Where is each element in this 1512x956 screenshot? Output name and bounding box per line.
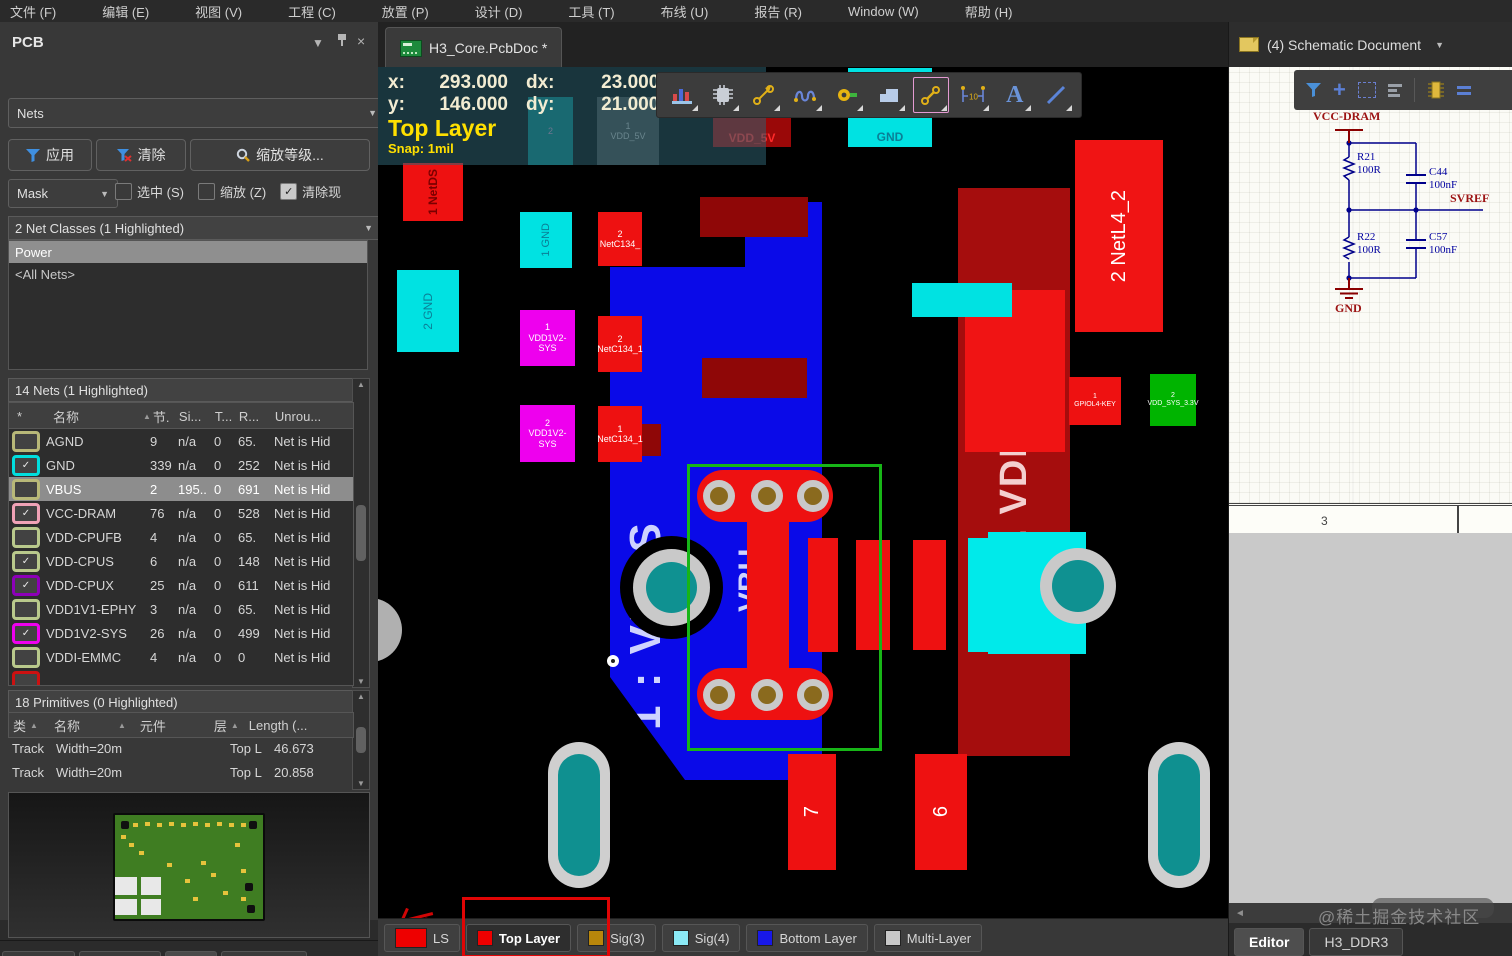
document-tab[interactable]: H3_Core.PcbDoc * xyxy=(385,27,562,68)
net-visibility-checkbox[interactable]: ✓ xyxy=(12,551,40,572)
primitives-header: 18 Primitives (0 Highlighted) xyxy=(8,690,366,714)
net-unrouted: Net is Hid xyxy=(274,626,353,641)
net-label-svref[interactable]: SVREF xyxy=(1450,191,1489,206)
pad-netl4[interactable]: 2 NetL4_2 xyxy=(1075,140,1163,332)
net-signal: 195.. xyxy=(178,482,214,497)
schematic-panel-title: (4) Schematic Document xyxy=(1267,37,1421,53)
net-routed: 65. xyxy=(238,602,274,617)
net-row[interactable] xyxy=(9,669,353,686)
net-t: 0 xyxy=(214,578,238,593)
menu-item[interactable]: 视图 (V) xyxy=(195,2,242,21)
menu-bar: 文件 (F)编辑 (E)视图 (V)工程 (C)放置 (P)设计 (D)工具 (… xyxy=(0,0,1512,23)
board-preview[interactable] xyxy=(8,792,370,938)
drill-hole-ring[interactable] xyxy=(378,598,402,662)
net-classes-list: Power<All Nets> xyxy=(8,240,368,370)
net-unrouted: Net is Hid xyxy=(274,650,353,665)
nets-list: AGND9n/a065.Net is Hid✓GND339n/a0252Net … xyxy=(8,428,354,686)
primitives-header-label: 18 Primitives (0 Highlighted) xyxy=(15,695,178,710)
net-row[interactable]: VDD-CPUFB4n/a065.Net is Hid xyxy=(9,525,353,549)
net-signal: n/a xyxy=(178,506,214,521)
net-routed: 499 xyxy=(238,626,274,641)
net-unrouted: Net is Hid xyxy=(274,506,353,521)
menu-item[interactable]: 布线 (U) xyxy=(661,2,709,21)
net-unrouted: Net is Hid xyxy=(274,602,353,617)
menu-item[interactable]: Window (W) xyxy=(848,4,919,19)
panel-dropdown-icon[interactable]: ▼ xyxy=(312,36,324,50)
net-row[interactable]: VDDI-EMMC4n/a00Net is Hid xyxy=(9,645,353,669)
net-t: 0 xyxy=(214,530,238,545)
tab-pcb[interactable]: PCB xyxy=(165,951,218,956)
pad-label: VDD1V2-SYS xyxy=(520,428,575,449)
menu-item[interactable]: 编辑 (E) xyxy=(102,2,149,21)
net-visibility-checkbox[interactable] xyxy=(12,479,40,500)
net-unrouted: Net is Hid xyxy=(274,530,353,545)
board-thumbnail xyxy=(113,813,265,921)
resistor-value[interactable]: 100R xyxy=(1357,164,1381,176)
net-node-count: 9 xyxy=(150,434,178,449)
col-pname: 名称 xyxy=(38,716,114,735)
board-connector xyxy=(141,877,161,895)
primitive-layer: Top L xyxy=(230,741,274,756)
net-node-count: 339 xyxy=(150,458,178,473)
close-icon[interactable]: × xyxy=(357,33,365,49)
dropdown-corner xyxy=(1025,105,1031,111)
net-routed: 691 xyxy=(238,482,274,497)
net-unrouted: Net is Hid xyxy=(274,458,353,473)
net-name: AGND xyxy=(40,434,150,449)
scroll-down-icon[interactable]: ▼ xyxy=(357,677,365,686)
resistor-value[interactable]: 100R xyxy=(1357,244,1381,256)
net-node-count: 2 xyxy=(150,482,178,497)
schematic-panel: (4) Schematic Document ▼ xyxy=(1228,22,1512,956)
scroll-thumb[interactable] xyxy=(356,727,366,753)
vdd5-region[interactable]: 2. VDD_5 xyxy=(958,188,1070,756)
document-tab-label: H3_Core.PcbDoc * xyxy=(429,40,547,56)
line-icon[interactable] xyxy=(1039,78,1073,112)
net-node-count: 6 xyxy=(150,554,178,569)
net-signal: n/a xyxy=(178,626,214,641)
primitives-column-header[interactable]: 类 ▲ 名称 ▲ 元件 层 ▲ Length (... xyxy=(8,712,354,738)
col-nodes: 节. xyxy=(151,407,179,426)
track-icon[interactable] xyxy=(913,77,949,113)
net-t: 0 xyxy=(214,482,238,497)
annotation-scribble xyxy=(425,908,441,918)
primitive-layer: Top L xyxy=(230,765,274,780)
schematic-preview[interactable]: VCC-DRAM R21 100R C44 100nF SVREF R22 10… xyxy=(1229,67,1512,533)
net-visibility-checkbox[interactable] xyxy=(12,671,40,687)
mask-select[interactable]: Mask ▼ xyxy=(8,179,118,208)
schematic-wiring xyxy=(1229,67,1512,533)
layer-tab-bottom-layer[interactable]: Bottom Layer xyxy=(746,924,867,952)
hud-y-label: y: xyxy=(388,94,416,116)
col-si: Si... xyxy=(179,409,215,424)
zoom-level-button[interactable]: 缩放等级... xyxy=(190,139,370,171)
col-type: 类 xyxy=(9,716,26,735)
pad-cyan-bar[interactable] xyxy=(968,538,1002,652)
pad-label: 1 GND xyxy=(540,223,552,257)
tab-editor[interactable]: Editor xyxy=(1234,928,1304,956)
net-row[interactable]: VBUS2195..0691Net is Hid xyxy=(9,477,353,501)
dropdown-corner xyxy=(774,105,780,111)
net-visibility-checkbox[interactable]: ✓ xyxy=(12,575,40,596)
net-row[interactable]: ✓VCC-DRAM76n/a0528Net is Hid xyxy=(9,501,353,525)
mask-value: Mask xyxy=(17,186,48,201)
net-node-count: 26 xyxy=(150,626,178,641)
net-row[interactable]: ✓VDD1V2-SYS26n/a0499Net is Hid xyxy=(9,621,353,645)
primitive-row[interactable]: TrackWidth=20mTop L20.858 xyxy=(8,760,352,784)
dimension-icon[interactable]: 10 xyxy=(956,78,990,112)
zone-divider xyxy=(1457,506,1459,536)
pcb-canvas[interactable]: 2 1 VDD_5V VDD_5V GND 1 : VBUS VBU 1 Net… xyxy=(378,67,1228,918)
pad-label: GPIOL4-KEY xyxy=(1074,401,1116,409)
layer-tab-label: Multi-Layer xyxy=(907,931,971,946)
capacitor-ref[interactable]: C57 xyxy=(1429,231,1447,243)
option-checkboxes: 选中 (S)缩放 (Z)✓清除现 xyxy=(115,182,378,201)
option-checkbox[interactable]: 缩放 (Z) xyxy=(198,182,266,201)
scroll-down-icon[interactable]: ▼ xyxy=(357,779,365,788)
net-unrouted: Net is Hid xyxy=(274,578,353,593)
net-classes-header-label: 2 Net Classes (1 Highlighted) xyxy=(15,221,184,236)
clear-button[interactable]: 清除 xyxy=(96,139,186,171)
col-r: R... xyxy=(239,409,275,424)
resistor-ref[interactable]: R22 xyxy=(1357,231,1375,243)
component-icon[interactable] xyxy=(706,78,740,112)
chevron-down-icon: ▼ xyxy=(364,223,373,233)
checkbox-icon[interactable] xyxy=(115,183,132,200)
dropdown-corner xyxy=(692,105,698,111)
filter-icon[interactable] xyxy=(1306,83,1321,97)
dropdown-corner xyxy=(733,105,739,111)
net-routed: 148 xyxy=(238,554,274,569)
option-checkbox[interactable]: ✓清除现 xyxy=(280,182,341,201)
interactive-route-icon[interactable] xyxy=(747,78,781,112)
menu-item[interactable]: 设计 (D) xyxy=(475,2,523,21)
divider xyxy=(1414,78,1415,102)
pad-label: 1 NetDS xyxy=(426,169,440,215)
scroll-up-icon[interactable]: ▲ xyxy=(357,380,365,389)
net-routed: 0 xyxy=(238,650,274,665)
board-holes xyxy=(121,821,129,829)
net-visibility-checkbox[interactable]: ✓ xyxy=(12,455,40,476)
layer-tabs-bar: LSTop LayerSig(3)Sig(4)Bottom LayerMulti… xyxy=(378,918,1234,956)
primitive-row[interactable]: TrackWidth=20mTop L46.673 xyxy=(8,736,352,760)
pad-vdd1v2[interactable]: 2 VDD1V2-SYS xyxy=(520,405,575,462)
net-visibility-checkbox[interactable] xyxy=(12,431,40,452)
scroll-up-icon[interactable]: ▲ xyxy=(357,692,365,701)
net-node-count: 76 xyxy=(150,506,178,521)
pin-icon[interactable] xyxy=(338,34,346,48)
net-label-gnd[interactable]: GND xyxy=(1335,301,1362,316)
apply-label: 应用 xyxy=(46,145,74,165)
clear-label: 清除 xyxy=(138,145,166,165)
net-row[interactable]: ✓VDD-CPUX25n/a0611Net is Hid xyxy=(9,573,353,597)
layer-tab-ls[interactable]: LS xyxy=(384,924,460,952)
net-visibility-checkbox[interactable]: ✓ xyxy=(12,623,40,644)
menu-item[interactable]: 工具 (T) xyxy=(568,2,614,21)
net-unrouted: Net is Hid xyxy=(274,554,353,569)
text-string-icon[interactable]: A xyxy=(998,78,1032,112)
pad-label: 1 xyxy=(545,322,550,332)
net-unrouted: Net is Hid xyxy=(274,434,353,449)
keepout-rect[interactable] xyxy=(700,197,808,237)
net-routed: 65. xyxy=(238,530,274,545)
dropdown-corner xyxy=(983,105,989,111)
net-class-item[interactable]: Power xyxy=(9,241,367,263)
capacitor-ref[interactable]: C44 xyxy=(1429,166,1447,178)
option-checkbox[interactable]: 选中 (S) xyxy=(115,182,184,201)
net-t: 0 xyxy=(214,650,238,665)
nets-scrollbar[interactable]: ▲ ▼ xyxy=(352,378,370,688)
via-icon[interactable] xyxy=(830,78,864,112)
pad-label: 2 NetL4_2 xyxy=(1108,190,1131,282)
panel-title: PCB xyxy=(12,34,44,51)
net-signal: n/a xyxy=(178,554,214,569)
hud-dy-label: dy: xyxy=(508,94,572,116)
net-node-count: 4 xyxy=(150,650,178,665)
cross-probe-icon[interactable]: + xyxy=(1333,80,1346,100)
net-name: VDD-CPUFB xyxy=(40,530,150,545)
net-lines-icon[interactable] xyxy=(1457,86,1471,95)
net-visibility-checkbox[interactable] xyxy=(12,527,40,548)
pad-red-bar[interactable] xyxy=(913,540,946,650)
chevron-down-icon: ▼ xyxy=(1435,40,1444,50)
net-t: 0 xyxy=(214,458,238,473)
net-row[interactable]: ✓GND339n/a0252Net is Hid xyxy=(9,453,353,477)
dropdown-corner xyxy=(1066,105,1072,111)
board-connector xyxy=(115,877,137,895)
sort-asc-icon: ▲ xyxy=(118,721,126,730)
resistor-ref[interactable]: R21 xyxy=(1357,151,1375,163)
pad-netc134[interactable]: 2 NetC134_ xyxy=(598,212,642,266)
pad-gnd2[interactable]: 2 GND xyxy=(397,270,459,352)
net-routed: 252 xyxy=(238,458,274,473)
slot-pad[interactable] xyxy=(548,742,610,888)
keepout-rect[interactable] xyxy=(702,358,807,398)
net-signal: n/a xyxy=(178,434,214,449)
funnel-icon xyxy=(26,149,40,162)
watermark: @稀土掘金技术社区 xyxy=(1318,903,1480,928)
pad-label: 7 xyxy=(801,806,824,817)
layer-tab-sig-4-[interactable]: Sig(4) xyxy=(662,924,741,952)
primitives-scrollbar[interactable]: ▲ ▼ xyxy=(352,690,370,790)
net-signal: n/a xyxy=(178,650,214,665)
net-row[interactable]: ✓VDD-CPUS6n/a0148Net is Hid xyxy=(9,549,353,573)
menu-item[interactable]: 文件 (F) xyxy=(10,2,56,21)
pad-label: NetC134_1 xyxy=(597,434,643,444)
net-row[interactable]: AGND9n/a065.Net is Hid xyxy=(9,429,353,453)
sort-asc-icon: ▲ xyxy=(30,721,38,730)
tab-navigator[interactable]: Navigator xyxy=(79,951,161,956)
tuning-meander-icon[interactable] xyxy=(789,78,823,112)
layer-tab-top-layer[interactable]: Top Layer xyxy=(466,924,571,952)
primitive-length: 20.858 xyxy=(274,765,352,780)
pad-cyan[interactable] xyxy=(912,283,1012,317)
primitive-length: 46.673 xyxy=(274,741,352,756)
document-tabbar: H3_Core.PcbDoc * xyxy=(378,22,1228,67)
pad-label: 2 xyxy=(617,229,622,239)
board-connector xyxy=(141,899,161,915)
svg-text:10: 10 xyxy=(969,93,978,102)
pad-label: 2 xyxy=(617,334,622,344)
selection-box xyxy=(687,464,882,751)
zoom-level-label: 缩放等级... xyxy=(256,145,324,165)
pad-netds[interactable]: 1 NetDS xyxy=(403,163,463,221)
magnifier-icon xyxy=(236,148,250,162)
net-signal: n/a xyxy=(178,530,214,545)
col-unrouted: Unrou... xyxy=(275,409,321,424)
menu-item[interactable]: 帮助 (H) xyxy=(965,2,1013,21)
zone-number: 3 xyxy=(1321,514,1328,528)
net-classes-header[interactable]: 2 Net Classes (1 Highlighted) ▼ xyxy=(8,216,380,240)
net-t: 0 xyxy=(214,626,238,641)
document-icon xyxy=(1239,37,1259,52)
capacitor-value[interactable]: 100nF xyxy=(1429,179,1457,191)
layer-color-swatch xyxy=(477,930,493,946)
dropdown-corner xyxy=(899,105,905,111)
layer-tab-sig-3-[interactable]: Sig(3) xyxy=(577,924,656,952)
funnel-clear-icon xyxy=(117,149,132,162)
pad-sys3v3[interactable]: 2 VDD_SYS_3.3V xyxy=(1150,374,1196,426)
workspace-background xyxy=(1229,533,1512,903)
net-name: VDD1V2-SYS xyxy=(40,626,150,641)
layer-color-swatch xyxy=(757,930,773,946)
layer-tab-label: Sig(4) xyxy=(695,931,730,946)
polygon-pour-icon[interactable] xyxy=(872,78,906,112)
schematic-panel-header[interactable]: (4) Schematic Document ▼ xyxy=(1229,22,1512,67)
net-unrouted: Net is Hid xyxy=(274,482,353,497)
scroll-thumb[interactable] xyxy=(356,505,366,561)
altium-window: 文件 (F)编辑 (E)视图 (V)工程 (C)放置 (P)设计 (D)工具 (… xyxy=(0,0,1512,956)
net-class-item[interactable]: <All Nets> xyxy=(9,263,367,285)
nets-column-header[interactable]: * 名称 ▲ 节. Si... T... R... Unrou... xyxy=(8,402,354,430)
net-node-count: 25 xyxy=(150,578,178,593)
checkbox-label: 清除现 xyxy=(302,182,341,201)
layer-tab-label: Bottom Layer xyxy=(779,931,856,946)
col-name: 名称 xyxy=(47,407,139,426)
layer-color-swatch xyxy=(588,930,604,946)
panel-mode-value: Nets xyxy=(17,106,44,121)
drill-hole-center xyxy=(1052,560,1104,612)
capacitor-value[interactable]: 100nF xyxy=(1429,244,1457,256)
net-visibility-checkbox[interactable] xyxy=(12,599,40,620)
component-yellow-icon[interactable] xyxy=(1427,79,1445,101)
layer-color-swatch xyxy=(885,930,901,946)
tab-h3_ddr3[interactable]: H3_DDR3 xyxy=(1309,928,1403,956)
net-node-count: 4 xyxy=(150,530,178,545)
checkbox-label: 选中 (S) xyxy=(137,182,184,201)
pad-label: 2 xyxy=(545,418,550,428)
chevron-down-icon: ▼ xyxy=(368,108,377,118)
col-star: * xyxy=(9,409,47,424)
layer-tab-label: Top Layer xyxy=(499,931,560,946)
net-signal: n/a xyxy=(178,578,214,593)
net-label-vcc-dram[interactable]: VCC-DRAM xyxy=(1313,109,1380,124)
hud-x-label: x: xyxy=(388,72,416,94)
net-row[interactable]: VDD1V1-EPHY3n/a065.Net is Hid xyxy=(9,597,353,621)
pad-pin7[interactable]: 7 xyxy=(788,754,836,870)
sort-asc-icon: ▲ xyxy=(231,721,239,730)
menu-item[interactable]: 放置 (P) xyxy=(382,2,429,21)
net-visibility-checkbox[interactable] xyxy=(12,647,40,668)
layer-color-swatch xyxy=(673,930,689,946)
primitive-name: Width=20m xyxy=(56,741,142,756)
pad-label: NetC134_ xyxy=(600,239,641,249)
net-visibility-checkbox[interactable]: ✓ xyxy=(12,503,40,524)
layer-tab-label: Sig(3) xyxy=(610,931,645,946)
net-routed: 528 xyxy=(238,506,274,521)
pad-label: 1 xyxy=(1093,393,1097,401)
dropdown-corner xyxy=(857,105,863,111)
pcbdoc-icon xyxy=(400,40,422,57)
pad-netc134[interactable]: 1 NetC134_1 xyxy=(598,406,642,462)
net-node-count: 3 xyxy=(150,602,178,617)
net-signal: n/a xyxy=(178,458,214,473)
scroll-left-icon[interactable]: ◄ xyxy=(1235,908,1245,919)
nets-header-label: 14 Nets (1 Highlighted) xyxy=(15,383,148,398)
pad-vdd1v2[interactable]: 1 VDD1V2-SYS xyxy=(520,310,575,366)
col-layer: 层 xyxy=(214,716,227,735)
net-name: VCC-DRAM xyxy=(40,506,150,521)
pad-gnd1[interactable]: 1 GND xyxy=(520,212,572,268)
align-icon[interactable] xyxy=(1388,84,1402,97)
marquee-select-icon[interactable] xyxy=(1358,82,1376,98)
col-length: Length (... xyxy=(239,718,308,733)
board-connector xyxy=(115,899,137,915)
panel-mode-select[interactable]: Nets ▼ xyxy=(8,98,386,128)
pcb-toolbar: 10 A xyxy=(656,72,1082,118)
menu-item[interactable]: 报告 (R) xyxy=(754,2,802,21)
net-name: GND xyxy=(40,458,150,473)
checkbox-icon[interactable]: ✓ xyxy=(280,183,297,200)
layer-tab-multi-layer[interactable]: Multi-Layer xyxy=(874,924,982,952)
schematic-toolbar: + xyxy=(1294,70,1512,110)
checkbox-icon[interactable] xyxy=(198,183,215,200)
pad-pin6[interactable]: 6 xyxy=(915,754,967,870)
layer-color-swatch xyxy=(395,928,427,948)
col-t: T... xyxy=(215,409,239,424)
tab-pcb-filter[interactable]: PCB Filter xyxy=(221,951,306,956)
slot-pad[interactable] xyxy=(1148,742,1210,888)
pad-label: 6 xyxy=(930,806,953,817)
hud-y-value: 146.000 xyxy=(416,94,508,116)
net-routed: 611 xyxy=(238,578,274,593)
hud-x-value: 293.000 xyxy=(416,72,508,94)
pad-label: VDD1V2-SYS xyxy=(520,333,575,354)
net-name: VDDI-EMMC xyxy=(40,650,150,665)
primitive-name: Width=20m xyxy=(56,765,142,780)
pcb-panel: PCB ▼ × Nets ▼ 应用 清除 缩放等级... Mask ▼ 选中 (… xyxy=(0,22,380,920)
hud-active-layer: Top Layer xyxy=(378,116,766,141)
primitives-list: TrackWidth=20mTop L46.673TrackWidth=20mT… xyxy=(8,736,352,786)
tab-projects[interactable]: Projects xyxy=(2,951,75,956)
pad-netc134[interactable]: 2 NetC134_1 xyxy=(598,316,642,372)
cursor-dot xyxy=(607,655,619,667)
net-name: VDD-CPUS xyxy=(40,554,150,569)
pad-gpio[interactable]: 1 GPIOL4-KEY xyxy=(1069,377,1121,425)
menu-item[interactable]: 工程 (C) xyxy=(288,2,336,21)
net-t: 0 xyxy=(214,602,238,617)
statistics-icon[interactable] xyxy=(665,78,699,112)
net-t: 0 xyxy=(214,434,238,449)
layer-tab-label: LS xyxy=(433,931,449,946)
nets-header: 14 Nets (1 Highlighted) xyxy=(8,378,366,402)
apply-button[interactable]: 应用 xyxy=(8,139,92,171)
hud-dx-label: dx: xyxy=(508,72,572,94)
left-bottom-tabs: ProjectsNavigatorPCBPCB Filter xyxy=(0,940,382,956)
net-name: VDD1V1-EPHY xyxy=(40,602,150,617)
net-signal: n/a xyxy=(178,602,214,617)
pad-label: GND xyxy=(877,130,904,144)
